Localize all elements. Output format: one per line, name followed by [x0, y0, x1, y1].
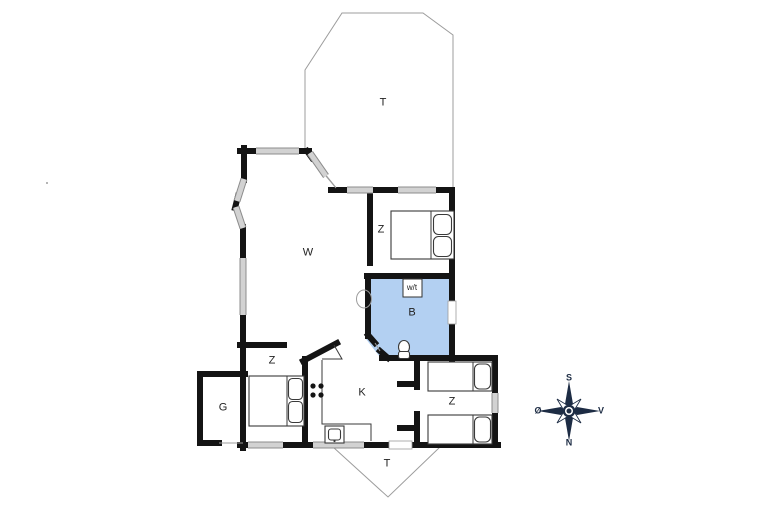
compass-south-label: S [566, 374, 572, 383]
floor-plan-drawing [0, 0, 768, 512]
window-left-bay-upper [237, 179, 244, 201]
bathroom-label: B [408, 308, 415, 319]
bed-single-top [428, 362, 492, 391]
bed-single-bottom [428, 415, 492, 444]
terrace-top-label: T [380, 98, 387, 109]
bedroom-bottom-right-label: Z [449, 397, 456, 408]
window-bay-diagonal [310, 153, 326, 176]
door-bottom-hall [389, 441, 412, 449]
bed-double-top-right [391, 211, 454, 259]
bedroom-top-right-label: Z [378, 225, 385, 236]
terrace-bottom-label: T [384, 459, 391, 470]
floor-plan: T W Z B w/t K Z G Z T S N Ø V [0, 0, 768, 512]
bed-double-bottom-left [249, 376, 304, 426]
compass-rose [538, 381, 600, 441]
window-left-bay-lower [236, 207, 243, 228]
compass-north-label: N [566, 439, 573, 448]
kitchen-label: K [358, 388, 365, 399]
compass-west-label: V [598, 407, 604, 416]
kitchen-sink [325, 426, 344, 443]
toilet [399, 341, 410, 359]
image-speck [46, 182, 48, 184]
living-room-label: W [303, 248, 313, 259]
terrace-bottom-outline [333, 447, 440, 497]
door-right-bathroom-wall [448, 301, 456, 324]
washer-dryer-label: w/t [407, 284, 417, 292]
garage-label: G [219, 403, 228, 414]
bedroom-bottom-left-label: Z [269, 356, 276, 367]
compass-east-label: Ø [534, 407, 541, 416]
